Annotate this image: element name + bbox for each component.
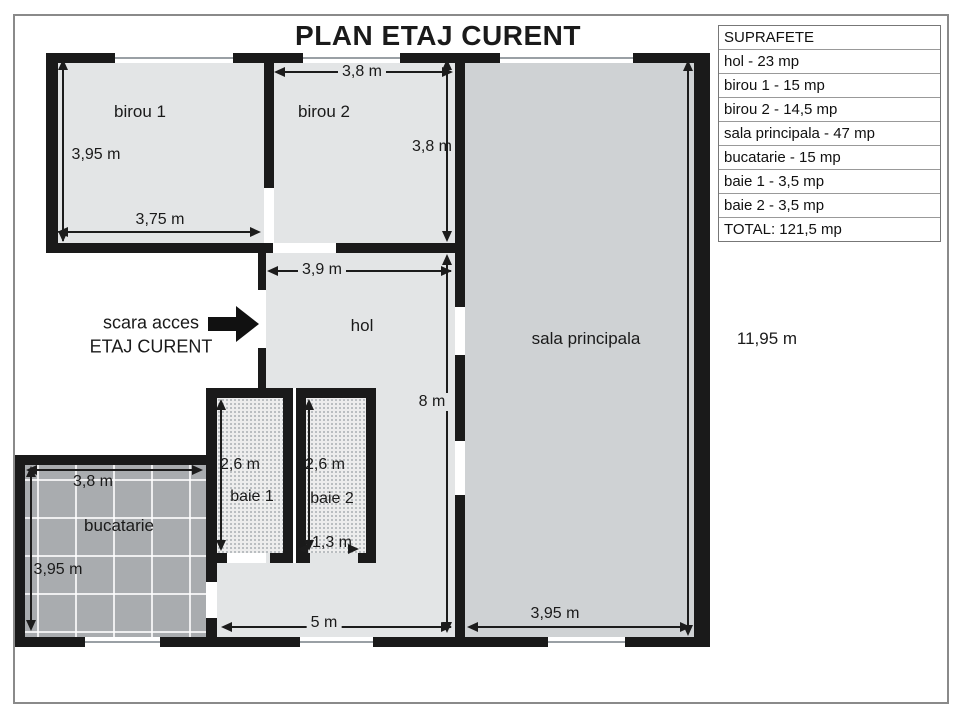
arrowhead-left xyxy=(221,622,232,632)
wall xyxy=(336,243,455,253)
dim-label-hol-h: 8 m xyxy=(415,393,450,411)
table-row: bucatarie - 15 mp xyxy=(719,146,940,170)
arrowhead-left xyxy=(57,227,68,237)
dimension-line xyxy=(60,231,258,233)
arrowhead-up xyxy=(442,59,452,70)
wall xyxy=(358,553,376,563)
arrowhead-right xyxy=(192,465,203,475)
room-baie2-floor xyxy=(306,398,366,553)
surfaces-table-header: SUPRAFETE xyxy=(719,26,940,50)
room-label-baie1: baie 1 xyxy=(230,488,274,506)
room-label-birou1: birou 1 xyxy=(114,102,166,122)
arrowhead-up xyxy=(58,59,68,70)
window xyxy=(303,53,400,63)
wall xyxy=(264,53,274,188)
table-row: birou 1 - 15 mp xyxy=(719,74,940,98)
wall xyxy=(694,53,710,647)
wall xyxy=(258,253,266,290)
dim-label-baie2-door-w: 1,3 m xyxy=(312,534,352,552)
arrowhead-right xyxy=(680,622,691,632)
arrowhead-left xyxy=(297,544,308,554)
dim-label-hol-w: 3,9 m xyxy=(298,261,346,279)
surfaces-table-total: TOTAL: 121,5 mp xyxy=(719,218,940,241)
arrowhead-up xyxy=(442,254,452,265)
arrowhead-down xyxy=(26,620,36,631)
wall xyxy=(625,637,710,647)
table-row: birou 2 - 14,5 mp xyxy=(719,98,940,122)
dim-label-baie1-h: 2,6 m xyxy=(220,456,260,474)
stairs-label-line2: ETAJ CURENT xyxy=(90,337,213,358)
wall xyxy=(206,553,227,563)
dim-label-birou2-w: 3,8 m xyxy=(338,63,386,81)
arrowhead-up xyxy=(26,466,36,477)
room-bucatarie-floor xyxy=(25,465,206,637)
window xyxy=(85,637,160,647)
arrowhead-down xyxy=(216,540,226,551)
arrowhead-right xyxy=(250,227,261,237)
wall xyxy=(296,398,306,563)
wall xyxy=(455,53,465,307)
room-label-bucatarie: bucatarie xyxy=(84,516,154,536)
dimension-line xyxy=(308,402,310,548)
dim-label-birou2-h: 3,8 m xyxy=(412,138,452,156)
table-row: baie 2 - 3,5 mp xyxy=(719,194,940,218)
dim-label-birou1-h: 3,95 m xyxy=(72,146,121,164)
dimension-line xyxy=(30,472,32,628)
arrowhead-up xyxy=(683,60,693,71)
dimension-line xyxy=(470,626,689,628)
wall xyxy=(373,637,548,647)
wall xyxy=(15,455,217,465)
wall xyxy=(15,637,85,647)
window-pane xyxy=(548,641,625,643)
wall xyxy=(206,388,293,398)
room-sala-floor xyxy=(465,63,694,637)
arrowhead-right xyxy=(441,622,452,632)
arrowhead-down xyxy=(442,231,452,242)
dim-label-building-h: 11,95 m xyxy=(737,329,797,349)
arrowhead-left xyxy=(274,67,285,77)
room-label-sala: sala principala xyxy=(532,329,641,349)
dimension-line xyxy=(62,64,64,241)
dim-label-baie2-h: 2,6 m xyxy=(305,456,345,474)
wall xyxy=(270,553,293,563)
window xyxy=(500,53,633,63)
window-pane xyxy=(300,641,373,643)
wall xyxy=(15,455,25,645)
window-pane xyxy=(500,57,633,59)
dim-label-bucatarie-w: 3,8 m xyxy=(73,473,113,491)
arrowhead-up xyxy=(216,399,226,410)
page-title: PLAN ETAJ CURENT xyxy=(295,20,581,52)
room-label-birou2: birou 2 xyxy=(298,102,350,122)
wall xyxy=(366,398,376,563)
stairs-arrow-icon xyxy=(236,306,259,342)
wall xyxy=(283,398,293,563)
wall xyxy=(296,388,376,398)
room-baie1-floor xyxy=(217,398,283,553)
dim-label-bucatarie-h: 3,95 m xyxy=(34,561,83,579)
dim-label-birou1-w: 3,75 m xyxy=(136,211,185,229)
table-row: sala principala - 47 mp xyxy=(719,122,940,146)
wall xyxy=(455,495,465,647)
wall xyxy=(455,355,465,441)
dim-label-hol-bottom-w: 5 m xyxy=(307,614,342,632)
dimension-line xyxy=(446,256,448,630)
wall xyxy=(160,637,300,647)
wall xyxy=(296,553,310,563)
window-pane xyxy=(303,57,400,59)
arrowhead-up xyxy=(304,399,314,410)
table-row: baie 1 - 3,5 mp xyxy=(719,170,940,194)
arrowhead-left xyxy=(467,622,478,632)
window-pane xyxy=(85,641,160,643)
window xyxy=(548,637,625,647)
dimension-line xyxy=(687,64,689,634)
arrowhead-left xyxy=(267,266,278,276)
dim-label-sala-bottom-w: 3,95 m xyxy=(531,605,580,623)
stairs-label-line1: scara acces xyxy=(103,313,199,334)
room-label-hol: hol xyxy=(351,316,374,336)
dimension-line xyxy=(220,402,222,548)
stairs-arrow-shaft xyxy=(208,317,238,331)
surfaces-table: SUPRAFETE hol - 23 mp birou 1 - 15 mp bi… xyxy=(718,25,941,242)
dimension-line xyxy=(269,270,451,272)
room-label-baie2: baie 2 xyxy=(310,490,354,508)
window xyxy=(300,637,373,647)
window-pane xyxy=(115,57,233,59)
floor-plan-page: PLAN ETAJ CURENT xyxy=(0,0,960,720)
table-row: hol - 23 mp xyxy=(719,50,940,74)
wall xyxy=(46,53,58,253)
dimension-line xyxy=(29,469,201,471)
window xyxy=(115,53,233,63)
wall xyxy=(46,243,273,253)
